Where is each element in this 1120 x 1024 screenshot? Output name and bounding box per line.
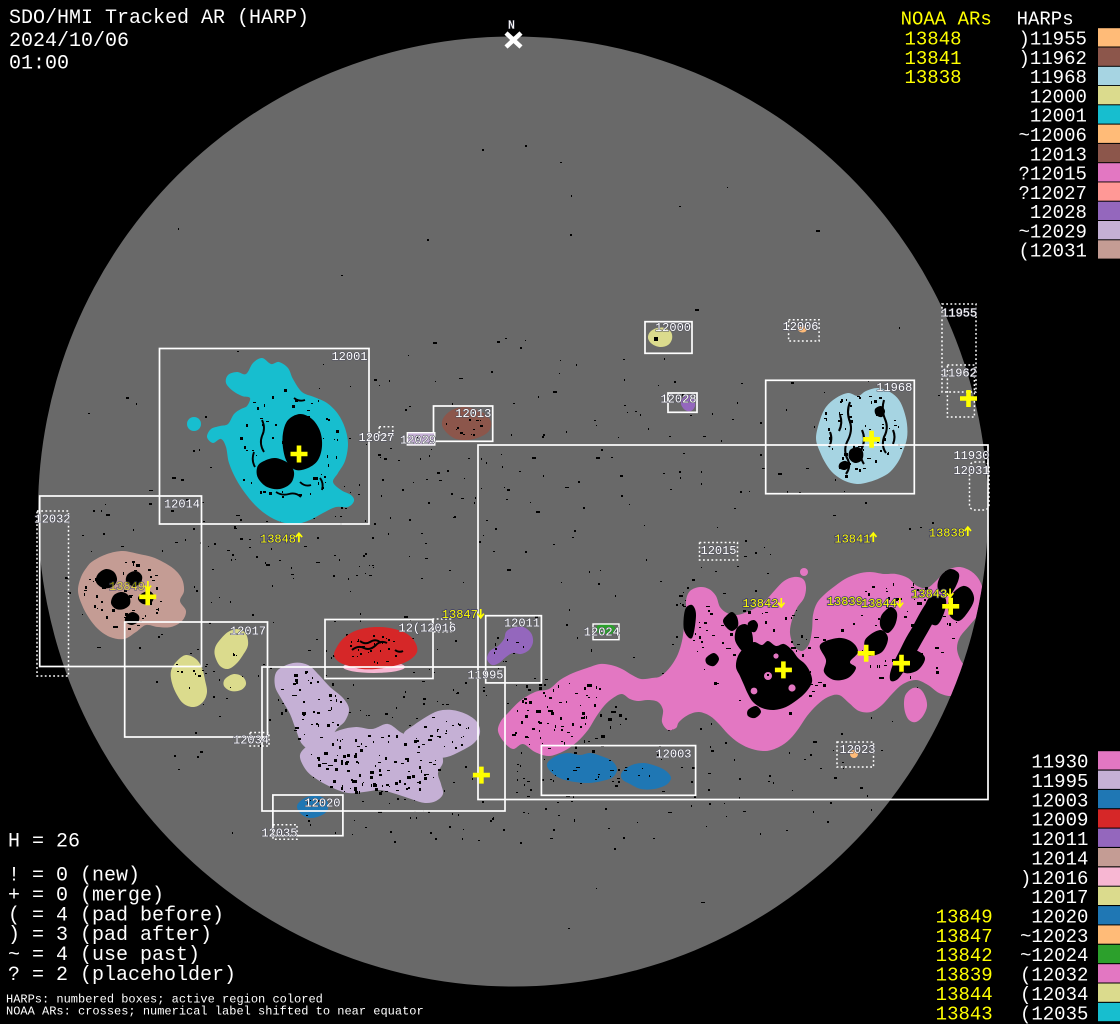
svg-text:12006: 12006 [783, 320, 819, 334]
svg-text:12003: 12003 [655, 747, 691, 761]
svg-text:13843: 13843 [911, 588, 947, 602]
svg-text:12013: 12013 [455, 407, 491, 421]
svg-text:H = 26: H = 26 [8, 831, 80, 854]
svg-text:13848: 13848 [260, 533, 296, 547]
svg-text:12015: 12015 [701, 544, 737, 558]
svg-text:13842: 13842 [742, 597, 778, 611]
svg-text:13839: 13839 [827, 595, 863, 609]
svg-text:13838: 13838 [929, 527, 965, 541]
svg-text:12028: 12028 [660, 392, 696, 406]
svg-text:13849: 13849 [109, 580, 145, 594]
svg-text:12035: 12035 [261, 827, 297, 841]
svg-text:01:00: 01:00 [9, 53, 69, 76]
svg-text:12011: 12011 [504, 617, 540, 631]
svg-text:NOAA ARs: NOAA ARs [901, 8, 992, 30]
svg-text:13838: 13838 [905, 67, 962, 89]
svg-text:12034: 12034 [233, 734, 269, 748]
svg-text:12031: 12031 [953, 464, 989, 478]
svg-text:12000: 12000 [655, 321, 691, 335]
svg-text:11955: 11955 [941, 307, 977, 321]
svg-text:11995: 11995 [467, 669, 503, 683]
svg-text:13844: 13844 [861, 597, 897, 611]
svg-text:(12035: (12035 [1020, 1003, 1088, 1024]
svg-text:12029: 12029 [400, 434, 436, 448]
svg-text:11930: 11930 [953, 449, 989, 463]
svg-text:12014: 12014 [164, 498, 200, 512]
svg-text:SDO/HMI Tracked AR (HARP): SDO/HMI Tracked AR (HARP) [9, 7, 309, 30]
svg-text:2024/10/06: 2024/10/06 [9, 30, 129, 53]
svg-text:12032: 12032 [35, 513, 71, 527]
svg-text:NOAA ARs: crosses; numerical l: NOAA ARs: crosses; numerical label shift… [6, 1004, 424, 1018]
svg-text:? = 2 (placeholder): ? = 2 (placeholder) [8, 964, 236, 987]
svg-text:12017: 12017 [230, 625, 266, 639]
svg-text:13847: 13847 [442, 608, 478, 622]
svg-text:12(12016: 12(12016 [399, 621, 457, 635]
svg-text:12024: 12024 [584, 626, 620, 640]
svg-text:HARPs: HARPs [1017, 8, 1074, 30]
svg-text:12023: 12023 [840, 743, 876, 757]
svg-text:12027: 12027 [359, 431, 395, 445]
svg-text:11968: 11968 [876, 381, 912, 395]
svg-text:N: N [508, 20, 515, 33]
svg-text:12001: 12001 [331, 350, 367, 364]
svg-text:13841: 13841 [834, 533, 870, 547]
svg-text:(12031: (12031 [1018, 241, 1086, 263]
svg-text:13843: 13843 [936, 1003, 993, 1024]
svg-text:11962: 11962 [941, 367, 977, 381]
svg-text:12020: 12020 [304, 797, 340, 811]
